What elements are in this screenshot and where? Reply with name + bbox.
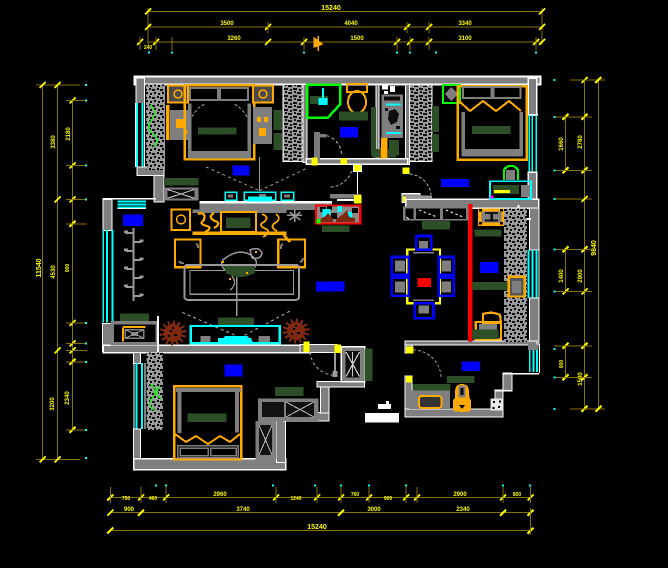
svg-text:1500: 1500 bbox=[578, 372, 584, 386]
svg-text:3200: 3200 bbox=[50, 397, 56, 411]
svg-text:3380: 3380 bbox=[51, 135, 57, 149]
svg-text:240: 240 bbox=[144, 45, 153, 51]
svg-text:1240: 1240 bbox=[290, 496, 301, 502]
svg-text:460: 460 bbox=[149, 496, 158, 502]
svg-text:3500: 3500 bbox=[220, 21, 234, 27]
svg-text:760: 760 bbox=[351, 492, 360, 498]
svg-text:4530: 4530 bbox=[51, 265, 57, 279]
svg-text:15240: 15240 bbox=[307, 524, 327, 531]
svg-text:800: 800 bbox=[513, 492, 522, 498]
svg-text:900: 900 bbox=[559, 360, 565, 369]
svg-text:3740: 3740 bbox=[236, 507, 250, 513]
svg-text:9840: 9840 bbox=[591, 240, 598, 256]
svg-text:3260: 3260 bbox=[227, 36, 241, 42]
svg-text:1400: 1400 bbox=[559, 269, 565, 283]
svg-text:2180: 2180 bbox=[66, 127, 72, 141]
svg-text:2780: 2780 bbox=[578, 135, 584, 149]
svg-text:15240: 15240 bbox=[321, 5, 341, 12]
svg-text:2340: 2340 bbox=[65, 391, 71, 405]
svg-text:2900: 2900 bbox=[453, 492, 467, 498]
svg-text:2960: 2960 bbox=[213, 492, 227, 498]
svg-text:900: 900 bbox=[65, 264, 71, 273]
svg-text:900: 900 bbox=[124, 507, 135, 513]
svg-text:11540: 11540 bbox=[36, 258, 43, 277]
svg-text:1500: 1500 bbox=[350, 36, 364, 42]
svg-text:3000: 3000 bbox=[367, 507, 381, 513]
svg-text:2340: 2340 bbox=[456, 507, 470, 513]
svg-text:750: 750 bbox=[122, 496, 131, 502]
svg-text:4040: 4040 bbox=[344, 21, 358, 27]
svg-text:900: 900 bbox=[384, 496, 393, 502]
svg-text:3340: 3340 bbox=[458, 21, 472, 27]
svg-text:1660: 1660 bbox=[559, 137, 565, 151]
svg-text:3100: 3100 bbox=[458, 36, 472, 42]
svg-text:2900: 2900 bbox=[578, 269, 584, 283]
